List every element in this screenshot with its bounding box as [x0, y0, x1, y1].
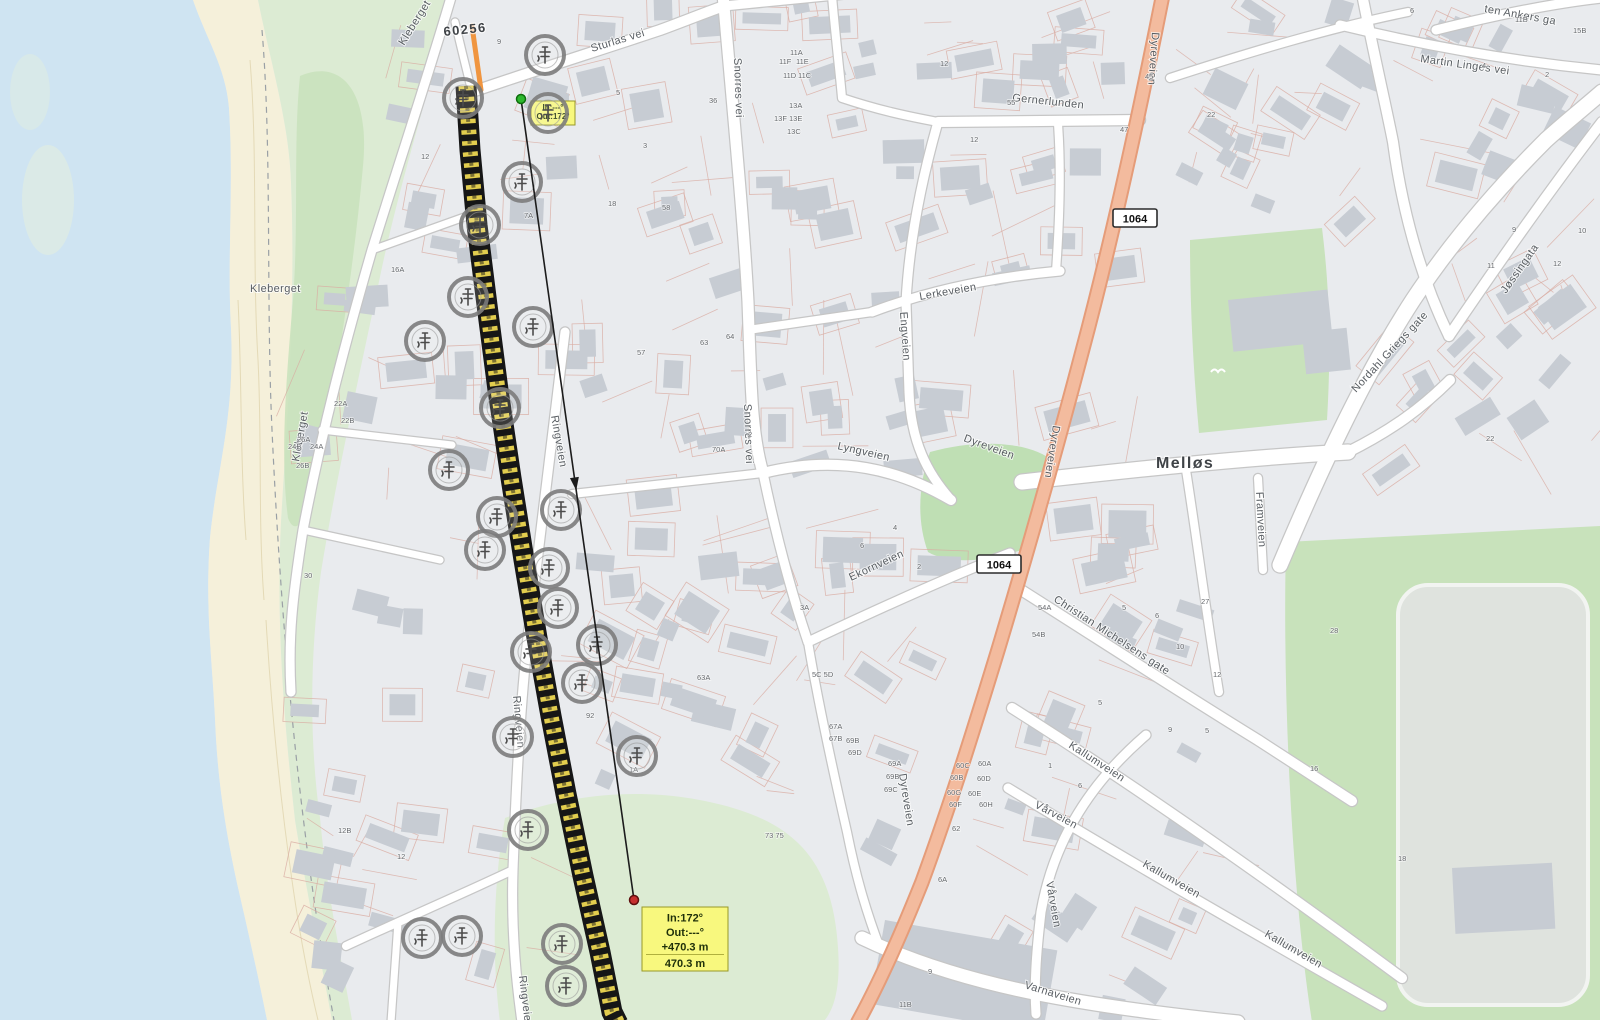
house-number: 11B	[1515, 15, 1528, 24]
place-label: Melløs	[1156, 455, 1214, 472]
house-number: 11D	[783, 71, 797, 80]
house-number: 12	[421, 152, 429, 161]
house-number: 6	[1078, 781, 1082, 790]
house-number: 9	[1512, 225, 1516, 234]
house-number: 11C	[798, 71, 812, 80]
street-label: Gernerlunden	[1012, 92, 1085, 111]
house-number: 11F	[779, 57, 792, 66]
mast-marker-icon[interactable]	[563, 664, 601, 702]
house-number: 69C	[884, 785, 898, 794]
house-number: 60F	[949, 800, 962, 809]
house-number: 22	[1207, 110, 1215, 119]
house-number: 12	[940, 59, 948, 68]
mast-marker-icon[interactable]	[578, 626, 616, 664]
stadium-pitch	[1398, 585, 1588, 1005]
house-number: 3	[643, 141, 647, 150]
house-number: 9	[497, 37, 501, 46]
house-number: 69B	[886, 772, 899, 781]
house-number: 54B	[1032, 630, 1045, 639]
house-number: 5	[1098, 698, 1102, 707]
house-number: 11E	[796, 57, 809, 66]
house-number: 60A	[978, 759, 991, 768]
house-number: 55	[1007, 98, 1015, 107]
house-number: 18	[1398, 854, 1406, 863]
house-number: 26A	[297, 435, 310, 444]
house-number: 13C	[787, 127, 801, 136]
house-number: 60G	[947, 788, 961, 797]
house-number: 12	[397, 852, 405, 861]
road-ref-badge: 1064	[977, 555, 1021, 573]
house-number: 58	[662, 203, 670, 212]
house-number: 11A	[790, 48, 803, 57]
house-number: 10	[1176, 642, 1184, 651]
measurement-end-handle[interactable]	[630, 896, 639, 905]
house-number: 26B	[296, 461, 309, 470]
house-number: 63A	[697, 673, 710, 682]
house-number: 60B	[950, 773, 963, 782]
map-canvas[interactable]: 10641064 Sturlas veiSnorres veiSnorres v…	[0, 0, 1600, 1020]
street-label: Kallumveien	[1141, 858, 1203, 901]
place-label: 60256	[443, 20, 487, 39]
house-number: 70A	[712, 445, 725, 454]
house-number: 16A	[391, 265, 404, 274]
house-number: 60H	[979, 800, 993, 809]
tooltip-line: Out:---°	[666, 927, 704, 939]
mast-marker-icon[interactable]	[461, 206, 499, 244]
house-number: 10	[1578, 226, 1586, 235]
house-number: 11	[1487, 261, 1495, 270]
mast-marker-icon[interactable]	[543, 925, 581, 963]
shallow-water-patch	[22, 145, 74, 255]
mast-marker-icon[interactable]	[444, 79, 482, 117]
house-number: 6	[1155, 611, 1159, 620]
house-number: 69D	[848, 748, 862, 757]
house-number: 6A	[938, 875, 947, 884]
house-number: 92	[586, 711, 594, 720]
house-number: 73 75	[765, 831, 784, 840]
mast-marker-icon[interactable]	[529, 94, 567, 132]
mast-marker-icon[interactable]	[514, 308, 552, 346]
house-number: 2	[1545, 70, 1549, 79]
house-number: 60E	[968, 789, 981, 798]
house-number: 67A	[829, 722, 842, 731]
house-number: 9	[1168, 725, 1172, 734]
house-number: 22	[1486, 434, 1494, 443]
house-number: 54A	[1038, 603, 1051, 612]
house-number: 47	[1120, 125, 1128, 134]
house-number: 30	[304, 571, 312, 580]
house-number: 12	[1213, 670, 1221, 679]
street-label: Framveien	[1253, 492, 1268, 548]
mast-marker-icon[interactable]	[618, 737, 656, 775]
mast-marker-icon[interactable]	[539, 589, 577, 627]
measurement-start-handle[interactable]	[517, 95, 526, 104]
house-number: 6	[1410, 6, 1414, 15]
house-number: 67B	[829, 734, 842, 743]
mast-marker-icon[interactable]	[530, 549, 568, 587]
house-number: 5	[616, 88, 620, 97]
house-number: 16	[1310, 764, 1318, 773]
house-number: 9	[928, 967, 932, 976]
house-number: 28	[1330, 626, 1338, 635]
house-number: 69B	[846, 736, 859, 745]
house-number: 6	[860, 541, 864, 550]
road-ref-text: 1064	[987, 560, 1012, 572]
house-number: 4	[1482, 61, 1486, 70]
mast-marker-icon[interactable]	[494, 718, 532, 756]
house-number: 36	[709, 96, 717, 105]
measurement-tooltip-end: In:172°Out:---°+470.3 m470.3 m	[642, 907, 728, 971]
house-number: 2	[748, 430, 752, 439]
house-number: 5	[1205, 726, 1209, 735]
house-number: 22B	[341, 416, 354, 425]
mast-marker-icon[interactable]	[449, 278, 487, 316]
shallow-water-patch	[10, 54, 50, 130]
street-label: Engveien	[897, 311, 912, 361]
house-number: 60D	[977, 774, 991, 783]
house-number: 22A	[334, 399, 347, 408]
house-number: 27	[1201, 597, 1209, 606]
house-number: 57	[637, 348, 645, 357]
house-number: 12	[970, 135, 978, 144]
house-number: 7A	[524, 211, 533, 220]
tooltip-line: 470.3 m	[665, 958, 706, 970]
house-number: 18	[608, 199, 616, 208]
building-footprint	[1452, 863, 1555, 934]
house-number: 64	[726, 332, 734, 341]
road-ref-text: 1064	[1123, 214, 1148, 226]
map-viewport[interactable]: 10641064 Sturlas veiSnorres veiSnorres v…	[0, 0, 1600, 1020]
house-number: 60C	[956, 761, 970, 770]
building-footprint	[1302, 328, 1351, 374]
tooltip-line: In:172°	[667, 913, 703, 925]
mast-marker-icon[interactable]	[512, 633, 550, 671]
street-label: Kleberget	[250, 283, 301, 295]
house-number: 63	[700, 338, 708, 347]
house-number: 24A	[310, 442, 323, 451]
mast-marker-icon[interactable]	[547, 967, 585, 1005]
mast-marker-icon[interactable]	[466, 531, 504, 569]
street-label: Snorres vei	[731, 58, 745, 118]
house-number: 13F	[774, 114, 787, 123]
house-number: 13E	[789, 114, 802, 123]
mast-marker-icon[interactable]	[509, 811, 547, 849]
mast-marker-icon[interactable]	[481, 389, 519, 427]
house-number: 12	[1553, 259, 1561, 268]
house-number: 5C 5D	[812, 670, 834, 679]
mast-marker-icon[interactable]	[526, 36, 564, 74]
house-number: 3A	[800, 603, 809, 612]
mast-marker-icon[interactable]	[542, 491, 580, 529]
tooltip-line: +470.3 m	[662, 942, 709, 954]
house-number: 62	[952, 824, 960, 833]
road-ref-badge: 1064	[1113, 209, 1157, 227]
house-number: 69A	[888, 759, 901, 768]
house-number: 2	[917, 562, 921, 571]
house-number: 13A	[789, 101, 802, 110]
mast-marker-icon[interactable]	[443, 917, 481, 955]
mast-marker-icon[interactable]	[430, 451, 468, 489]
house-number: 11B	[899, 1000, 912, 1009]
house-number: 15B	[1573, 26, 1586, 35]
house-number: 12B	[338, 826, 351, 835]
mast-marker-icon[interactable]	[406, 322, 444, 360]
mast-marker-icon[interactable]	[403, 919, 441, 957]
house-number: 1	[1048, 761, 1052, 770]
measurement-line	[521, 99, 634, 900]
house-number: 5	[1122, 603, 1126, 612]
house-number: 4	[893, 523, 897, 532]
house-number: 45	[1145, 72, 1153, 81]
